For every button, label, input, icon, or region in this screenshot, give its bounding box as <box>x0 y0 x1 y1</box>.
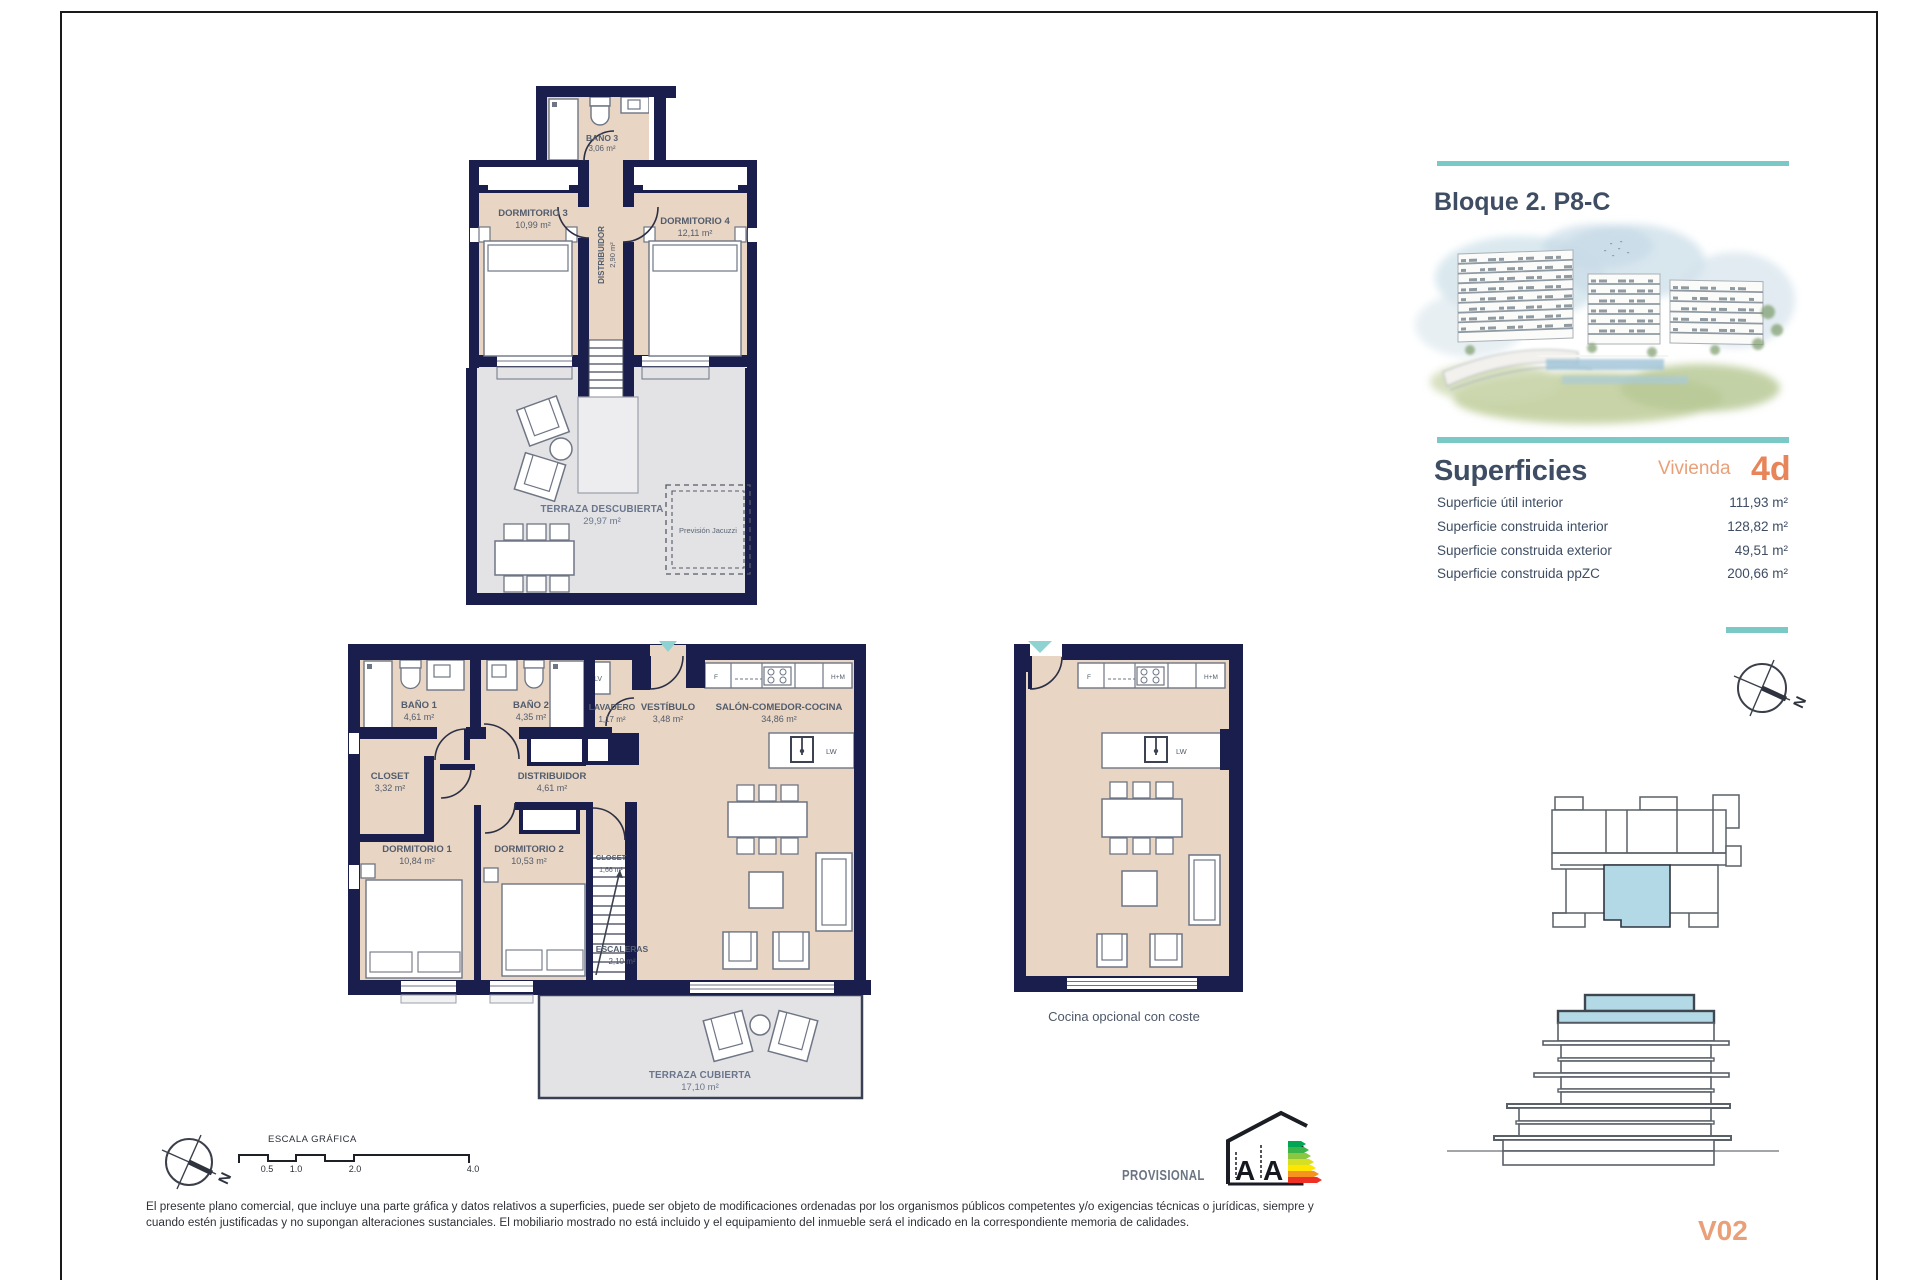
svg-text:cuando estén justificadas y no: cuando estén justificadas y no supongan … <box>146 1216 1189 1229</box>
svg-text:17,10 m²: 17,10 m² <box>681 1082 719 1093</box>
svg-text:BAÑO 1: BAÑO 1 <box>401 700 438 711</box>
svg-text:Previsión Jacuzzi: Previsión Jacuzzi <box>679 526 737 535</box>
svg-text:Superficie construida ppZC: Superficie construida ppZC <box>1437 566 1600 581</box>
svg-text:2.0: 2.0 <box>349 1164 362 1174</box>
svg-text:34,86 m²: 34,86 m² <box>761 714 797 724</box>
svg-text:12,11 m²: 12,11 m² <box>678 228 713 238</box>
svg-text:VESTÍBULO: VESTÍBULO <box>641 702 695 713</box>
svg-text:4.0: 4.0 <box>467 1164 480 1174</box>
svg-text:H+M: H+M <box>831 674 845 681</box>
svg-text:Superficie construida interior: Superficie construida interior <box>1437 519 1609 534</box>
svg-text:Superficie construida exterior: Superficie construida exterior <box>1437 543 1612 558</box>
svg-text:DISTRIBUIDOR: DISTRIBUIDOR <box>597 226 606 284</box>
svg-text:DORMITORIO 1: DORMITORIO 1 <box>382 844 452 855</box>
svg-text:F: F <box>714 674 718 681</box>
svg-text:128,82 m²: 128,82 m² <box>1727 519 1788 534</box>
svg-text:A: A <box>1263 1155 1283 1186</box>
svg-text:1,66 m²: 1,66 m² <box>599 867 623 874</box>
svg-text:2,90 m²: 2,90 m² <box>608 242 617 268</box>
svg-text:V02: V02 <box>1698 1215 1748 1246</box>
svg-text:3,32 m²: 3,32 m² <box>375 783 406 793</box>
svg-text:111,93 m²: 111,93 m² <box>1729 495 1788 510</box>
svg-text:10,84 m²: 10,84 m² <box>399 856 435 866</box>
svg-text:200,66 m²: 200,66 m² <box>1727 566 1788 581</box>
svg-text:Cocina opcional con coste: Cocina opcional con coste <box>1048 1009 1200 1024</box>
svg-text:ESCALA GRÁFICA: ESCALA GRÁFICA <box>268 1134 357 1145</box>
svg-text:SALÓN-COMEDOR-COCINA: SALÓN-COMEDOR-COCINA <box>716 701 843 713</box>
svg-text:DORMITORIO 2: DORMITORIO 2 <box>494 844 564 855</box>
svg-text:TERRAZA DESCUBIERTA: TERRAZA DESCUBIERTA <box>541 504 664 515</box>
svg-text:TERRAZA CUBIERTA: TERRAZA CUBIERTA <box>649 1070 751 1081</box>
svg-text:2,10 m²: 2,10 m² <box>608 957 635 966</box>
svg-text:H+M: H+M <box>1204 674 1218 681</box>
svg-text:4,61 m²: 4,61 m² <box>404 712 435 722</box>
svg-text:ESCALERAS: ESCALERAS <box>596 944 649 954</box>
svg-text:4,35 m²: 4,35 m² <box>516 712 547 722</box>
svg-text:DISTRIBUIDOR: DISTRIBUIDOR <box>518 771 587 782</box>
svg-text:LAVADERO: LAVADERO <box>589 702 636 712</box>
svg-text:BAÑO 3: BAÑO 3 <box>586 133 618 143</box>
svg-text:4d: 4d <box>1751 450 1791 488</box>
svg-text:0.5: 0.5 <box>261 1164 274 1174</box>
svg-text:3,48 m²: 3,48 m² <box>653 714 684 724</box>
svg-text:DORMITORIO 3: DORMITORIO 3 <box>498 208 568 219</box>
svg-text:LV: LV <box>594 676 602 683</box>
svg-text:A: A <box>1235 1155 1255 1186</box>
svg-text:PROVISIONAL: PROVISIONAL <box>1122 1166 1205 1183</box>
svg-text:LW: LW <box>1176 747 1188 756</box>
svg-text:F: F <box>1087 674 1091 681</box>
svg-text:CLOSET: CLOSET <box>371 771 410 782</box>
svg-text:3,06 m²: 3,06 m² <box>588 144 615 153</box>
svg-text:49,51 m²: 49,51 m² <box>1735 543 1789 558</box>
svg-text:1,17 m²: 1,17 m² <box>598 715 625 724</box>
svg-text:29,97 m²: 29,97 m² <box>583 516 621 527</box>
svg-text:1.0: 1.0 <box>290 1164 303 1174</box>
svg-text:Bloque 2. P8-C: Bloque 2. P8-C <box>1434 188 1610 216</box>
svg-text:BAÑO 2: BAÑO 2 <box>513 700 549 711</box>
svg-text:El presente plano comercial, q: El presente plano comercial, que incluye… <box>146 1200 1314 1213</box>
svg-text:4,61 m²: 4,61 m² <box>537 783 568 793</box>
svg-text:10,53 m²: 10,53 m² <box>511 856 547 866</box>
svg-text:DORMITORIO 4: DORMITORIO 4 <box>660 216 730 227</box>
svg-text:LW: LW <box>826 747 838 756</box>
svg-text:CLOSET: CLOSET <box>596 853 627 862</box>
svg-text:10,99 m²: 10,99 m² <box>515 220 551 230</box>
svg-text:Superficie útil interior: Superficie útil interior <box>1437 495 1564 510</box>
svg-text:Superficies: Superficies <box>1434 455 1587 487</box>
svg-text:Vivienda: Vivienda <box>1658 458 1731 479</box>
